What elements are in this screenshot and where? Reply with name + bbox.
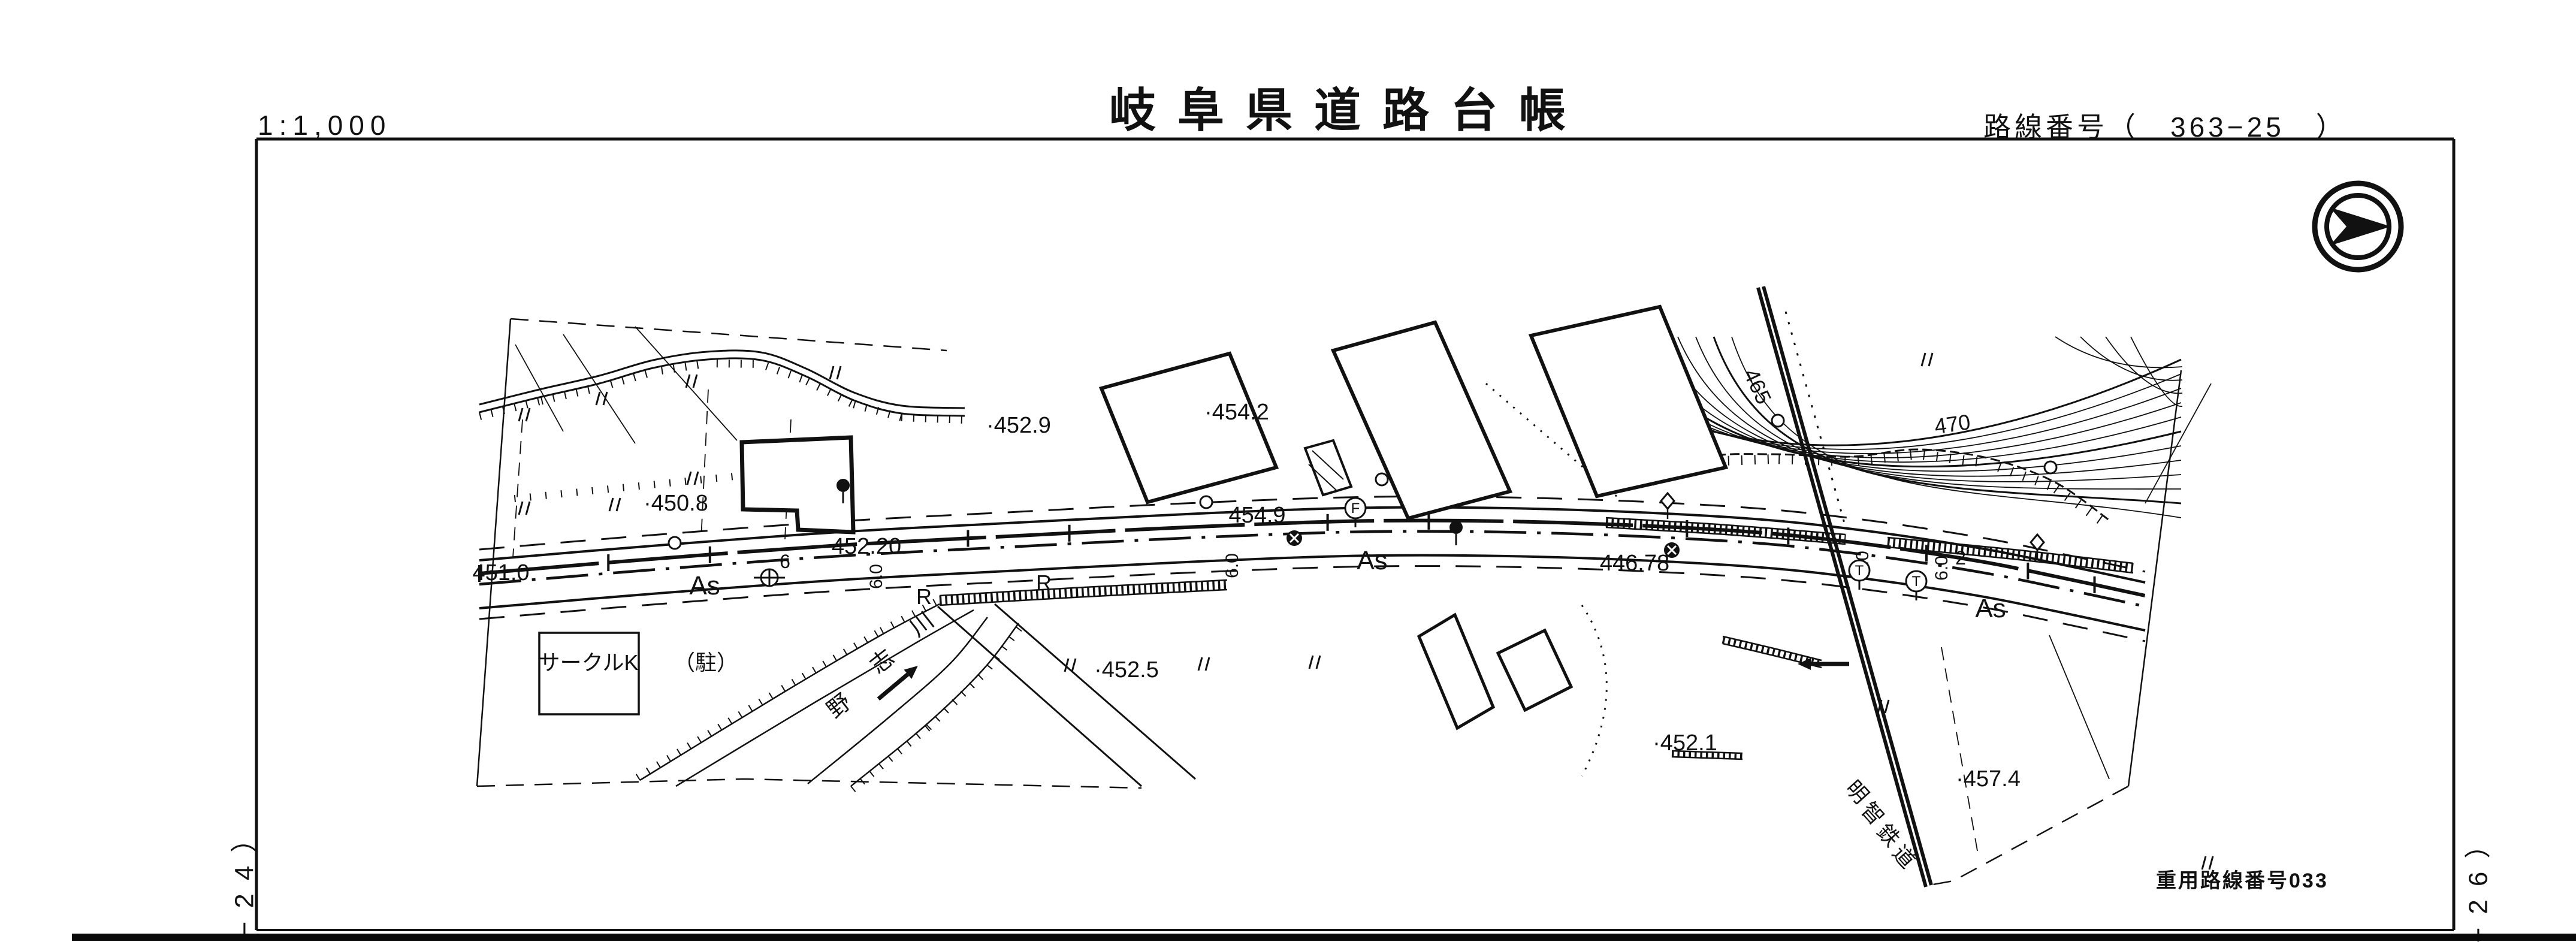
map-label: 446.78 [1600,551,1669,576]
map-label: R [916,584,932,609]
small-hatched-building [1305,440,1351,495]
map-label: 454.9 [1228,503,1285,528]
circle-marker-icon [2045,461,2056,473]
circled-letter-glyph: T [1912,573,1921,590]
map-label: 452.20 [832,534,901,559]
map-label: ·452.1 [1653,730,1717,756]
paddy-mark [596,392,607,405]
circle-marker-icon [1772,415,1784,427]
map-label: 6 [780,551,790,572]
map-label: ·457.4 [1956,766,2021,792]
map-label: 451.0 [472,560,529,585]
paddy-mark [1198,657,1209,671]
utility-pole-icon [1664,542,1680,558]
contour-line [2131,337,2182,406]
building [1531,307,1726,496]
building [1333,322,1510,518]
parcel-line [2049,635,2109,779]
river-bank [676,610,974,786]
map-label: 6.0 [1932,555,1952,581]
map-label: 川 [905,608,939,642]
map-canvas: ·450.8·452.9·454.2452.20451.0454.9446.78… [0,0,2576,942]
map-label: ·454.2 [1204,400,1269,425]
parcel-line [1941,647,1977,851]
circle-marker-icon [1376,473,1388,485]
map-label: 6.0 [1222,553,1242,578]
paddy-mark [2202,856,2213,869]
scan-edge-bar [72,934,2576,941]
road-centerline [479,532,2145,606]
parcel-line [513,419,523,557]
diamond-marker-icon [1661,493,1674,519]
map-label: ·452.9 [986,413,1051,438]
circled-letter-glyph: T [1855,563,1864,579]
utility-pole-icon [1287,530,1302,546]
paddy-mark [1922,353,1932,366]
railway-line [1758,288,1926,887]
map-label: As [1975,594,2006,623]
map-label: 2 [1955,547,1966,569]
paddy-mark [519,502,530,515]
circled-letter-icon: T [1849,560,1870,590]
circle-marker-icon [1200,496,1212,508]
road-south-edge [479,555,2145,630]
map-label: 志 [866,645,899,679]
streetlight-icon [1449,521,1463,545]
road-ledger-sheet: 1:1,000 岐阜県道路台帳 路線番号（ 363−25 ） −24） −26）… [0,0,2576,942]
building [1101,354,1276,502]
paddy-mark [1309,656,1320,669]
north-arrow-icon [2315,183,2401,270]
contour-line [1660,337,2181,476]
strip-boundary [477,319,2181,886]
building [1498,630,1571,710]
flow-arrow-icon [1798,658,1849,670]
map-label: ·452.5 [1094,657,1159,683]
contour-line [2055,337,2182,367]
map-label: As [1357,546,1387,575]
branch-road-edge [938,606,1141,786]
circle-marker-icon [669,537,681,549]
map-label: 470 [1933,409,1972,439]
branch-road-edge [995,604,1195,779]
road-shoulder-south [479,566,2145,641]
map-label: 6.0 [866,564,886,589]
river-bank [851,623,1019,786]
paddy-mark [830,366,841,379]
sheet-frame [72,139,2576,941]
paddy-mark [687,472,698,485]
parcel-line [635,327,737,440]
parcel-line [2145,384,2211,503]
paddy-mark [519,408,530,421]
map-label: サークルK [539,650,639,675]
contour-line [2080,337,2182,381]
road-north-edge [479,508,2145,582]
paddy-mark [609,498,620,511]
parcel-line [515,345,563,431]
map-label: （駐） [674,650,738,675]
map-label: R [1036,570,1052,595]
building [1419,615,1493,728]
circled-letter-glyph: F [1351,500,1360,517]
map-label: 465 [1739,365,1777,408]
river-bank [640,604,940,780]
parcel-line [701,390,708,539]
map-label: ·450.8 [644,491,708,516]
parcel-dotted [1582,605,1606,776]
map-label: As [689,571,720,600]
lane-hachure [479,360,962,424]
